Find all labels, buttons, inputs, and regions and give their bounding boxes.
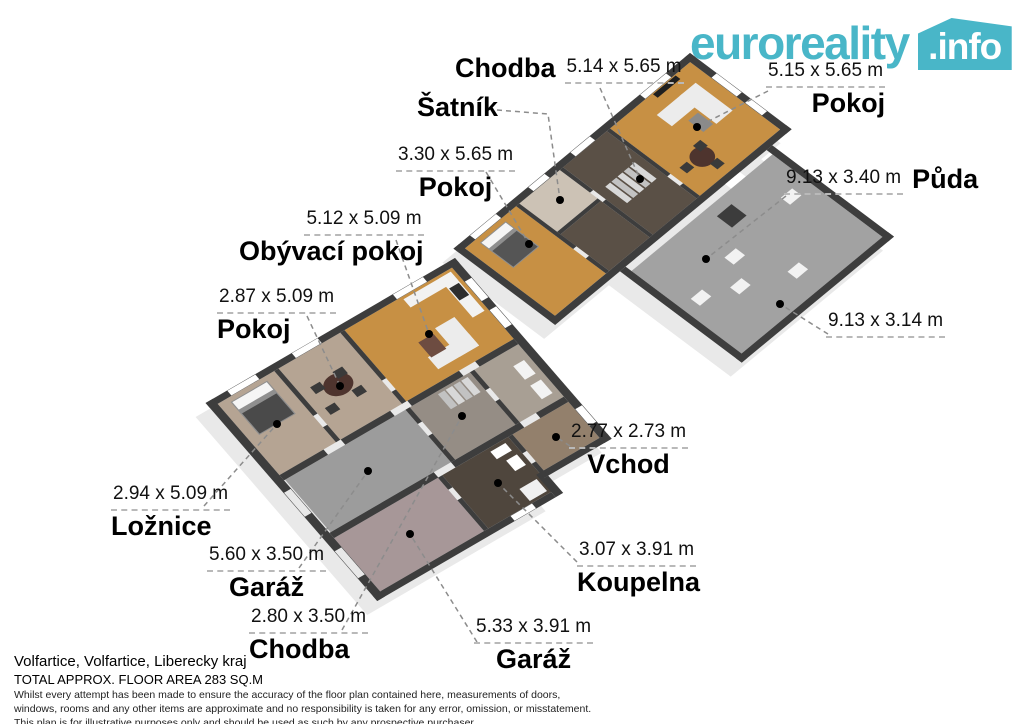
- room-name: Garáž: [229, 572, 304, 602]
- room-name: Pokoj: [812, 88, 886, 118]
- room-dimensions: 2.87 x 5.09 m: [217, 286, 336, 314]
- room-label-loznice: 2.94 x 5.09 m Ložnice: [111, 483, 230, 541]
- room-label-puda: 9.13 x 3.40 m Půda: [784, 167, 978, 195]
- room-label-koupelna: 3.07 x 3.91 m Koupelna: [577, 539, 700, 597]
- room-dimensions: 5.60 x 3.50 m: [207, 544, 326, 572]
- room-name: Pokoj: [217, 314, 291, 344]
- room-label-chodba-upper: Chodba 5.14 x 5.65 m: [455, 56, 684, 84]
- room-dimensions: 3.07 x 3.91 m: [577, 539, 696, 567]
- room-name: Pokoj: [419, 172, 493, 202]
- room-label-pokoj-287: 2.87 x 5.09 m Pokoj: [217, 286, 336, 344]
- room-label-pokoj-330: 3.30 x 5.65 m Pokoj: [396, 144, 515, 202]
- room-label-garaz-560: 5.60 x 3.50 m Garáž: [207, 544, 326, 602]
- room-name: Ložnice: [111, 511, 212, 541]
- room-dimensions: 2.77 x 2.73 m: [569, 421, 688, 449]
- room-label-puda-lower-section: 9.13 x 3.14 m: [826, 310, 945, 338]
- room-dimensions: 9.13 x 3.14 m: [826, 310, 945, 338]
- room-dimensions: 5.33 x 3.91 m: [474, 616, 593, 644]
- disclaimer-line: Whilst every attempt has been made to en…: [14, 688, 591, 702]
- disclaimer-line: This plan is for illustrative purposes o…: [14, 716, 591, 724]
- room-dimensions: 5.14 x 5.65 m: [565, 56, 684, 84]
- plan-footer: Volfartice, Volfartice, Liberecky kraj T…: [14, 652, 591, 724]
- room-name: Chodba: [455, 53, 556, 83]
- room-dimensions: 3.30 x 5.65 m: [396, 144, 515, 172]
- room-dimensions: 2.80 x 3.50 m: [249, 606, 368, 634]
- brand-badge-text: .info: [928, 24, 1001, 70]
- property-location: Volfartice, Volfartice, Liberecky kraj: [14, 652, 591, 671]
- floorplan-page: Chodba 5.14 x 5.65 m Šatník 3.30 x 5.65 …: [0, 0, 1024, 724]
- total-floor-area: TOTAL APPROX. FLOOR AREA 283 SQ.M: [14, 671, 591, 688]
- room-dimensions: 9.13 x 3.40 m: [784, 167, 903, 195]
- room-label-obyvaci-pokoj: 5.12 x 5.09 m Obývací pokoj: [239, 208, 424, 266]
- room-label-vchod: 2.77 x 2.73 m Vchod: [569, 421, 688, 479]
- room-reference-dots: [273, 123, 784, 538]
- room-dimensions: 2.94 x 5.09 m: [111, 483, 230, 511]
- room-name: Koupelna: [577, 567, 700, 597]
- room-name: Půda: [912, 164, 978, 194]
- room-name: Obývací pokoj: [239, 236, 424, 266]
- room-dimensions: 5.12 x 5.09 m: [304, 208, 423, 236]
- room-label-satnik: Šatník: [417, 92, 498, 122]
- room-name: Vchod: [587, 449, 670, 479]
- brand-wordmark: euroreality: [690, 18, 909, 68]
- disclaimer-line: windows, rooms and any other items are a…: [14, 702, 591, 716]
- brand-badge-house-icon: .info: [918, 18, 1012, 70]
- brand-logo: euroreality .info: [690, 18, 1012, 70]
- room-name: Šatník: [417, 92, 498, 122]
